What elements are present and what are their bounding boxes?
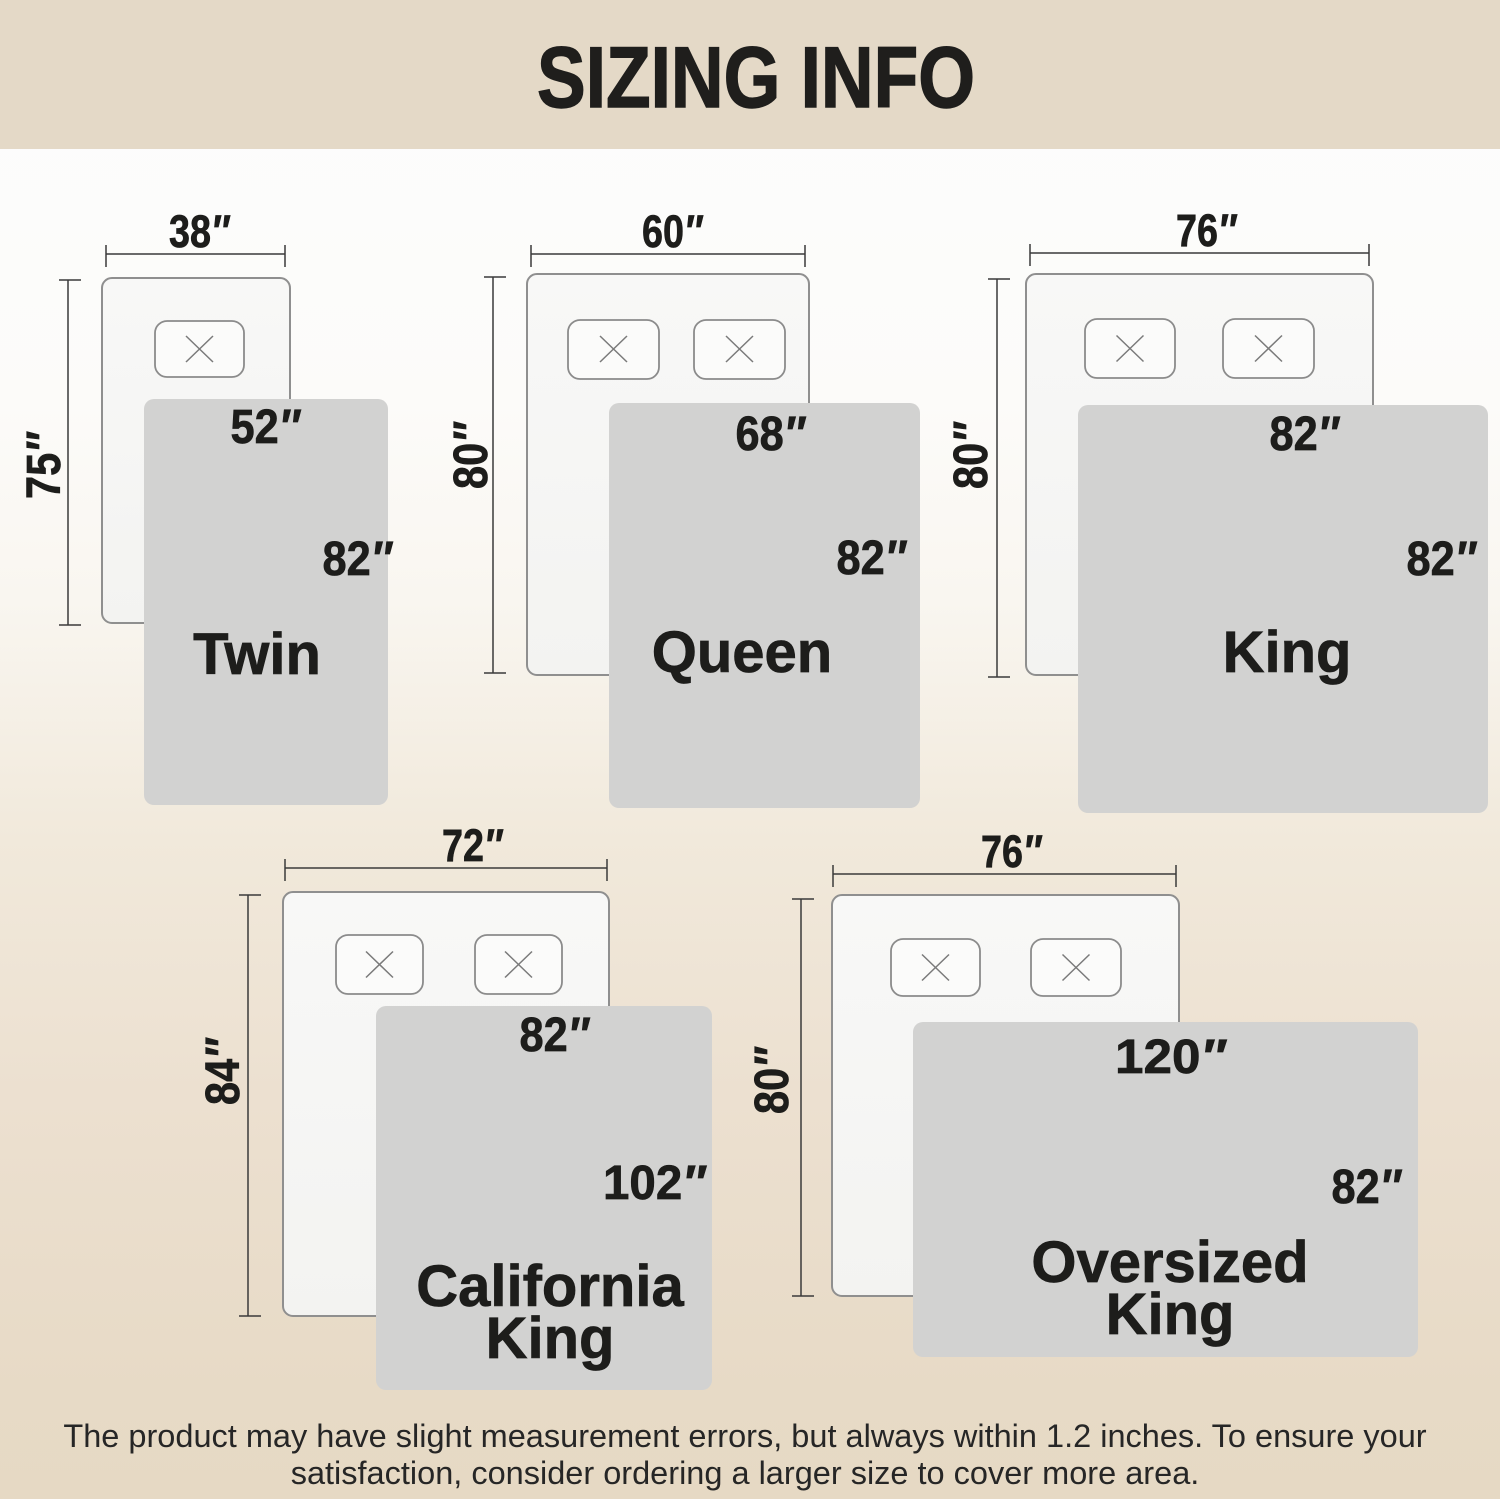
svg-text:76″: 76″	[981, 826, 1043, 877]
svg-text:72″: 72″	[442, 820, 504, 871]
svg-text:80″: 80″	[746, 1046, 799, 1114]
svg-text:Twin: Twin	[193, 622, 321, 687]
svg-text:Queen: Queen	[652, 620, 833, 685]
svg-text:60″: 60″	[642, 206, 704, 257]
svg-text:82″: 82″	[323, 533, 394, 586]
svg-text:80″: 80″	[945, 421, 998, 489]
svg-text:King: King	[486, 1306, 615, 1371]
svg-text:SIZING INFO: SIZING INFO	[537, 30, 975, 126]
svg-text:82″: 82″	[1270, 408, 1341, 461]
svg-text:120″: 120″	[1115, 1031, 1227, 1084]
svg-text:76″: 76″	[1176, 205, 1238, 256]
svg-text:52″: 52″	[231, 401, 302, 454]
svg-text:82″: 82″	[1332, 1161, 1403, 1214]
svg-text:75″: 75″	[18, 431, 71, 499]
svg-text:82″: 82″	[520, 1009, 591, 1062]
svg-text:82″: 82″	[1407, 533, 1478, 586]
svg-text:satisfaction, consider orderin: satisfaction, consider ordering a larger…	[291, 1455, 1200, 1491]
svg-text:80″: 80″	[445, 421, 498, 489]
svg-text:82″: 82″	[837, 532, 908, 585]
svg-text:King: King	[1106, 1282, 1235, 1347]
svg-text:38″: 38″	[169, 206, 231, 257]
svg-text:King: King	[1223, 620, 1352, 685]
svg-text:84″: 84″	[197, 1037, 250, 1105]
svg-text:102″: 102″	[603, 1157, 707, 1210]
svg-text:68″: 68″	[736, 408, 807, 461]
svg-text:The product may have slight me: The product may have slight measurement …	[63, 1418, 1426, 1454]
